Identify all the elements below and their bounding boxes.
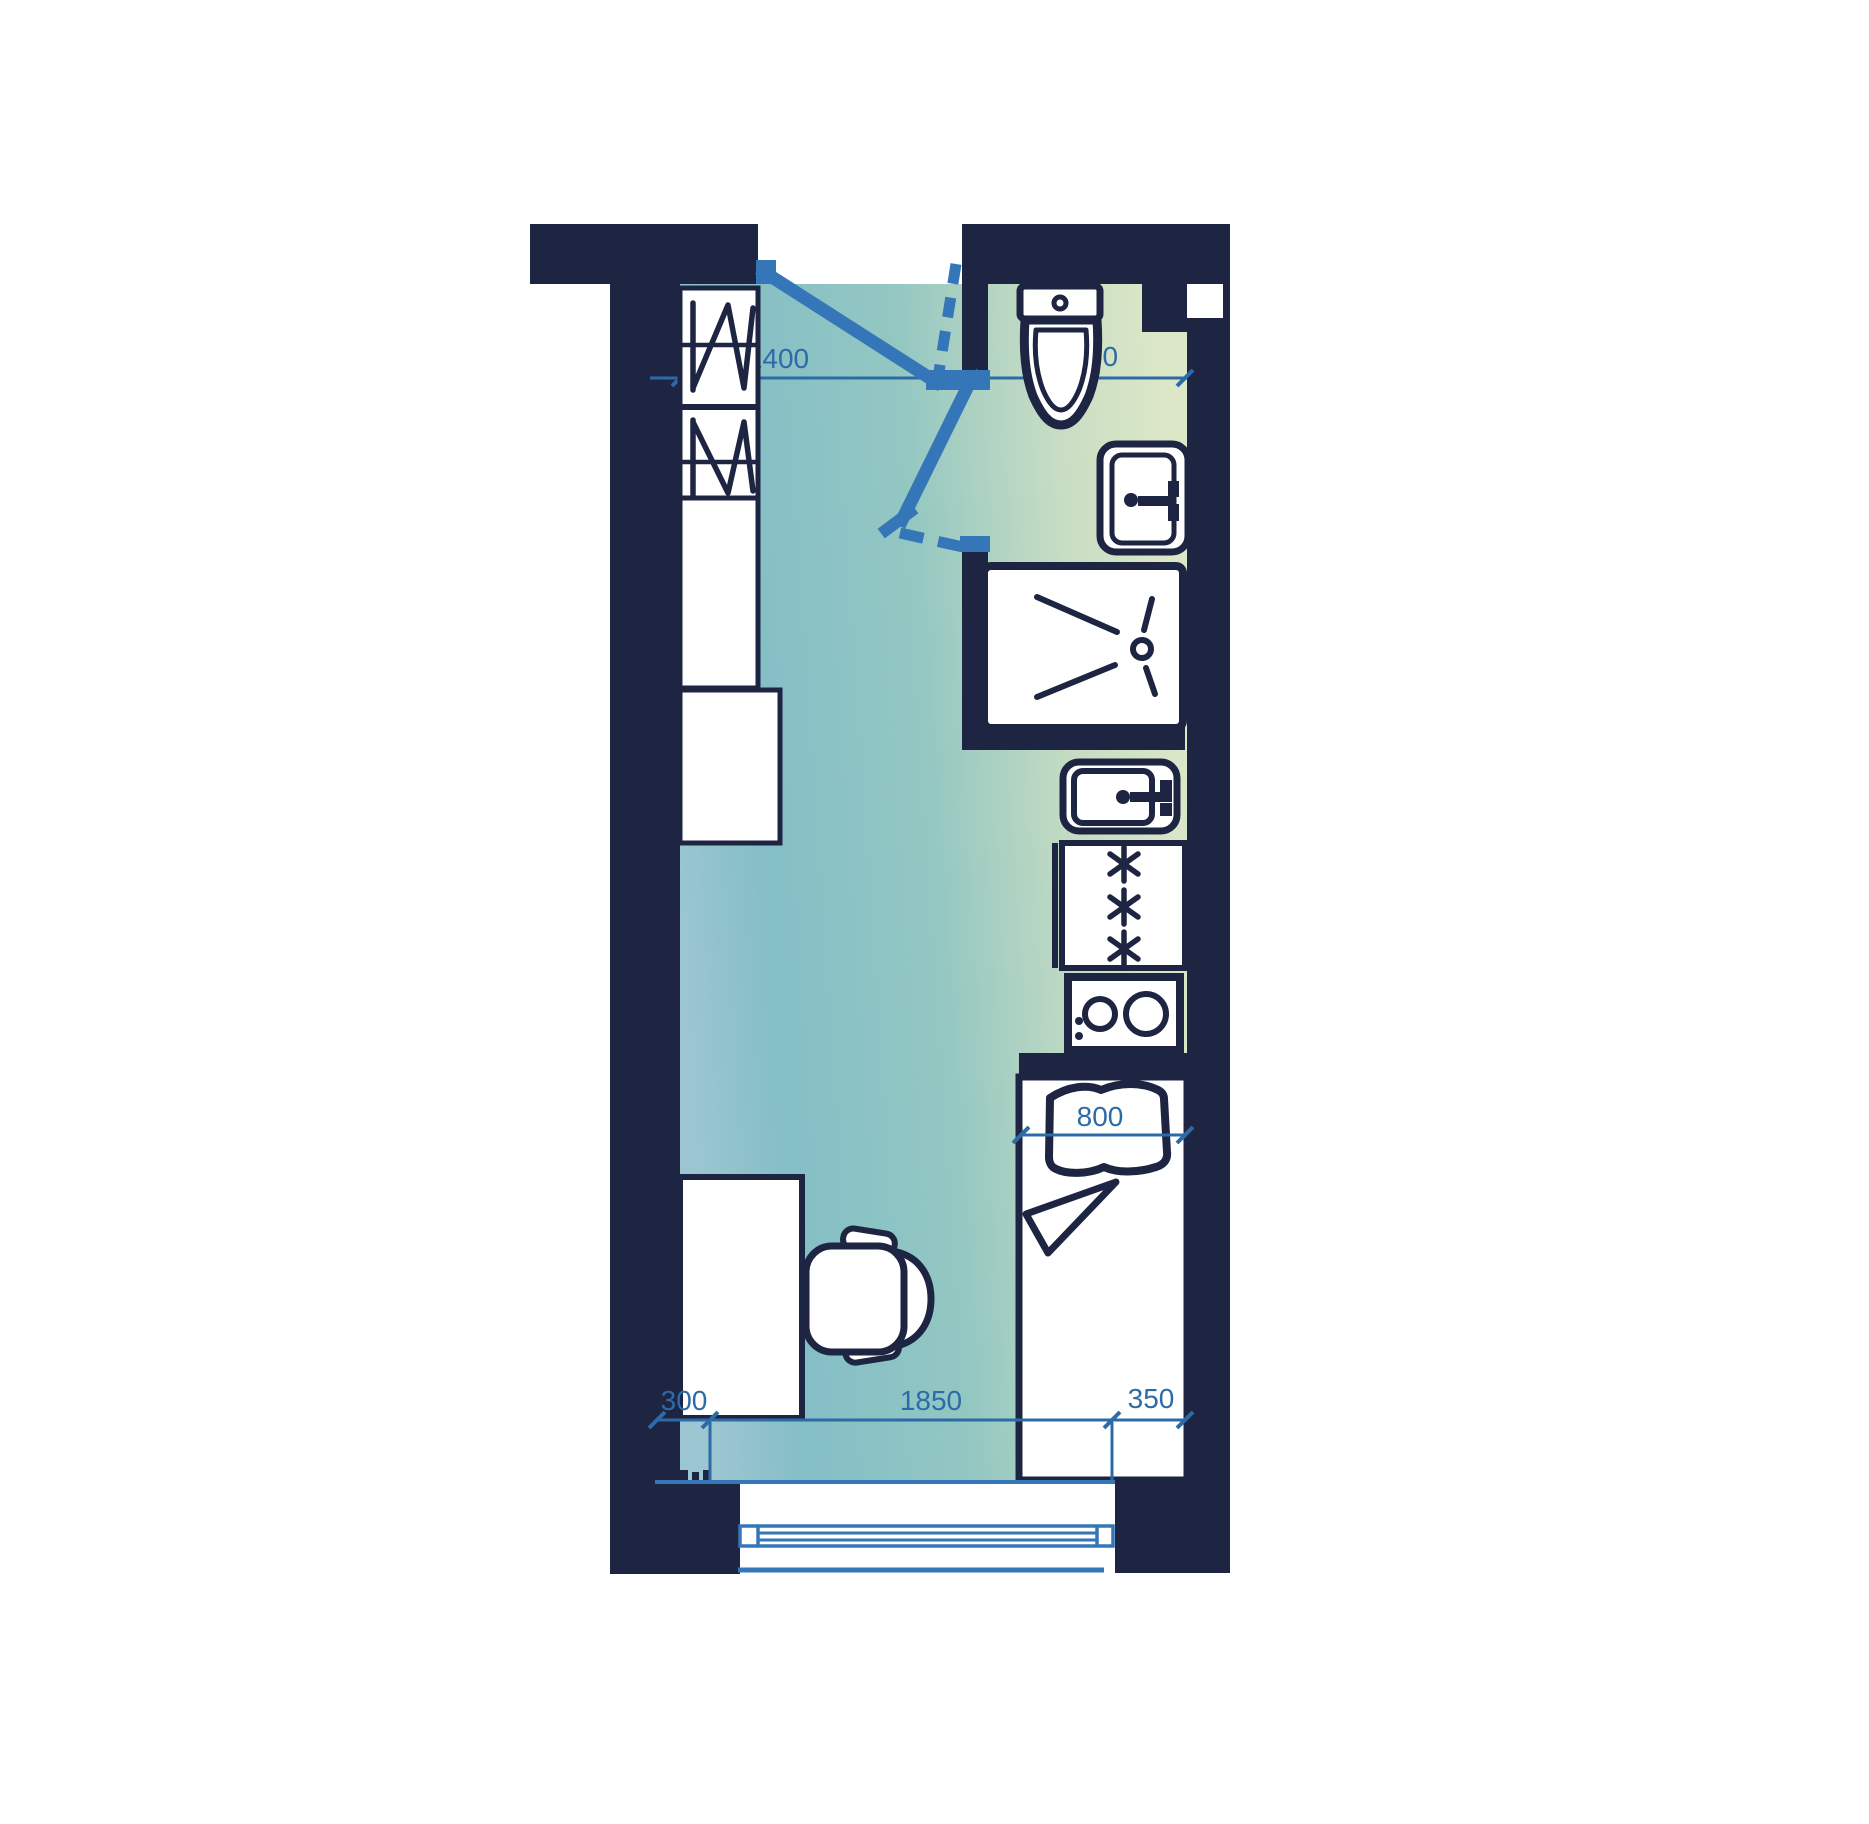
basin-drain bbox=[1124, 493, 1138, 507]
chair-seat bbox=[806, 1246, 904, 1352]
floor-plan-canvas: 1400 1000 bbox=[0, 0, 1869, 1824]
burner-large bbox=[1126, 994, 1166, 1034]
dimension-label-800: 800 bbox=[1077, 1101, 1124, 1132]
wall-bed-headboard-band bbox=[1019, 1053, 1187, 1077]
toilet-button bbox=[1054, 297, 1066, 309]
bathroom-door-catch bbox=[960, 536, 990, 552]
dimension-label-1850: 1850 bbox=[900, 1385, 962, 1416]
dimension-label-350: 350 bbox=[1128, 1383, 1175, 1414]
wall-duct-lip bbox=[1187, 318, 1230, 332]
wardrobe-symbol bbox=[680, 288, 758, 500]
kitchen-sink-symbol bbox=[1063, 762, 1177, 831]
toilet-symbol bbox=[1020, 286, 1100, 425]
fridge-freezer-symbol bbox=[1052, 843, 1185, 968]
wall-top-right-band bbox=[962, 224, 1230, 284]
cabinet-tall bbox=[680, 498, 758, 688]
wall-right-edge-strip bbox=[1223, 284, 1230, 318]
entry-door-stop-plate bbox=[926, 370, 990, 390]
wall-bottom-right-block bbox=[1115, 1482, 1230, 1573]
sink-drain bbox=[1116, 790, 1130, 804]
washbasin-symbol bbox=[1100, 444, 1188, 552]
kitchen-counter-unit bbox=[680, 690, 780, 843]
burner-small bbox=[1085, 999, 1115, 1029]
desk-symbol bbox=[680, 1177, 802, 1418]
shower-tray-symbol bbox=[984, 566, 1183, 728]
floor-plan-drawing: 1400 1000 bbox=[0, 0, 1869, 1824]
wall-bottom-left-block bbox=[610, 1480, 740, 1574]
sink-faucet bbox=[1130, 792, 1172, 802]
counter-front-line bbox=[1052, 843, 1058, 968]
wall-duct-block bbox=[1142, 284, 1187, 332]
dimension-label-300: 300 bbox=[661, 1385, 708, 1416]
stove-symbol bbox=[1068, 977, 1180, 1050]
window-frame bbox=[740, 1526, 1113, 1546]
shower-head bbox=[1133, 640, 1151, 658]
wall-left bbox=[610, 224, 680, 1480]
wall-right bbox=[1187, 330, 1230, 1482]
